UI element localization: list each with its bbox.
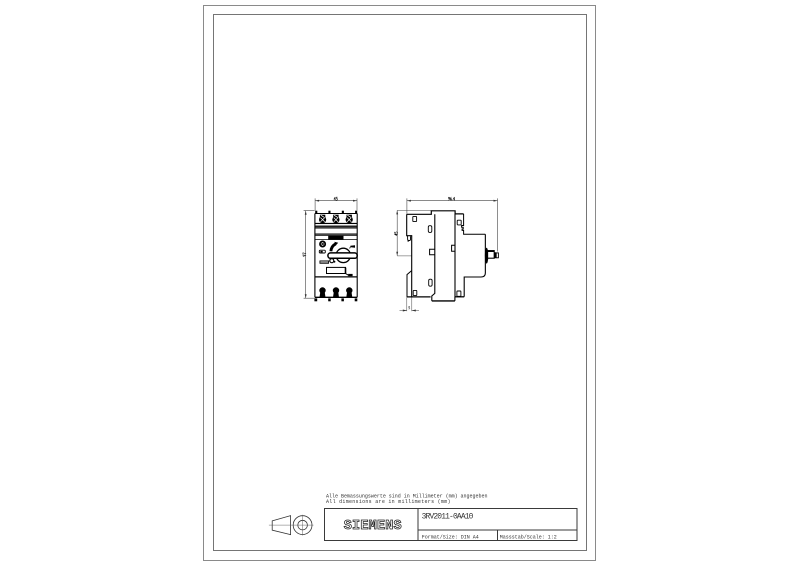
svg-text:3RV2011-0AA10: 3RV2011-0AA10 [422,513,474,522]
svg-text:All dimensions are in millimet: All dimensions are in millimeters (mm) [326,499,451,505]
svg-text:SIEMENS: SIEMENS [344,519,402,534]
svg-text:Massstab/Scale: 1:2: Massstab/Scale: 1:2 [500,535,557,541]
svg-text:Format/Size: DIN A4: Format/Size: DIN A4 [422,535,479,541]
